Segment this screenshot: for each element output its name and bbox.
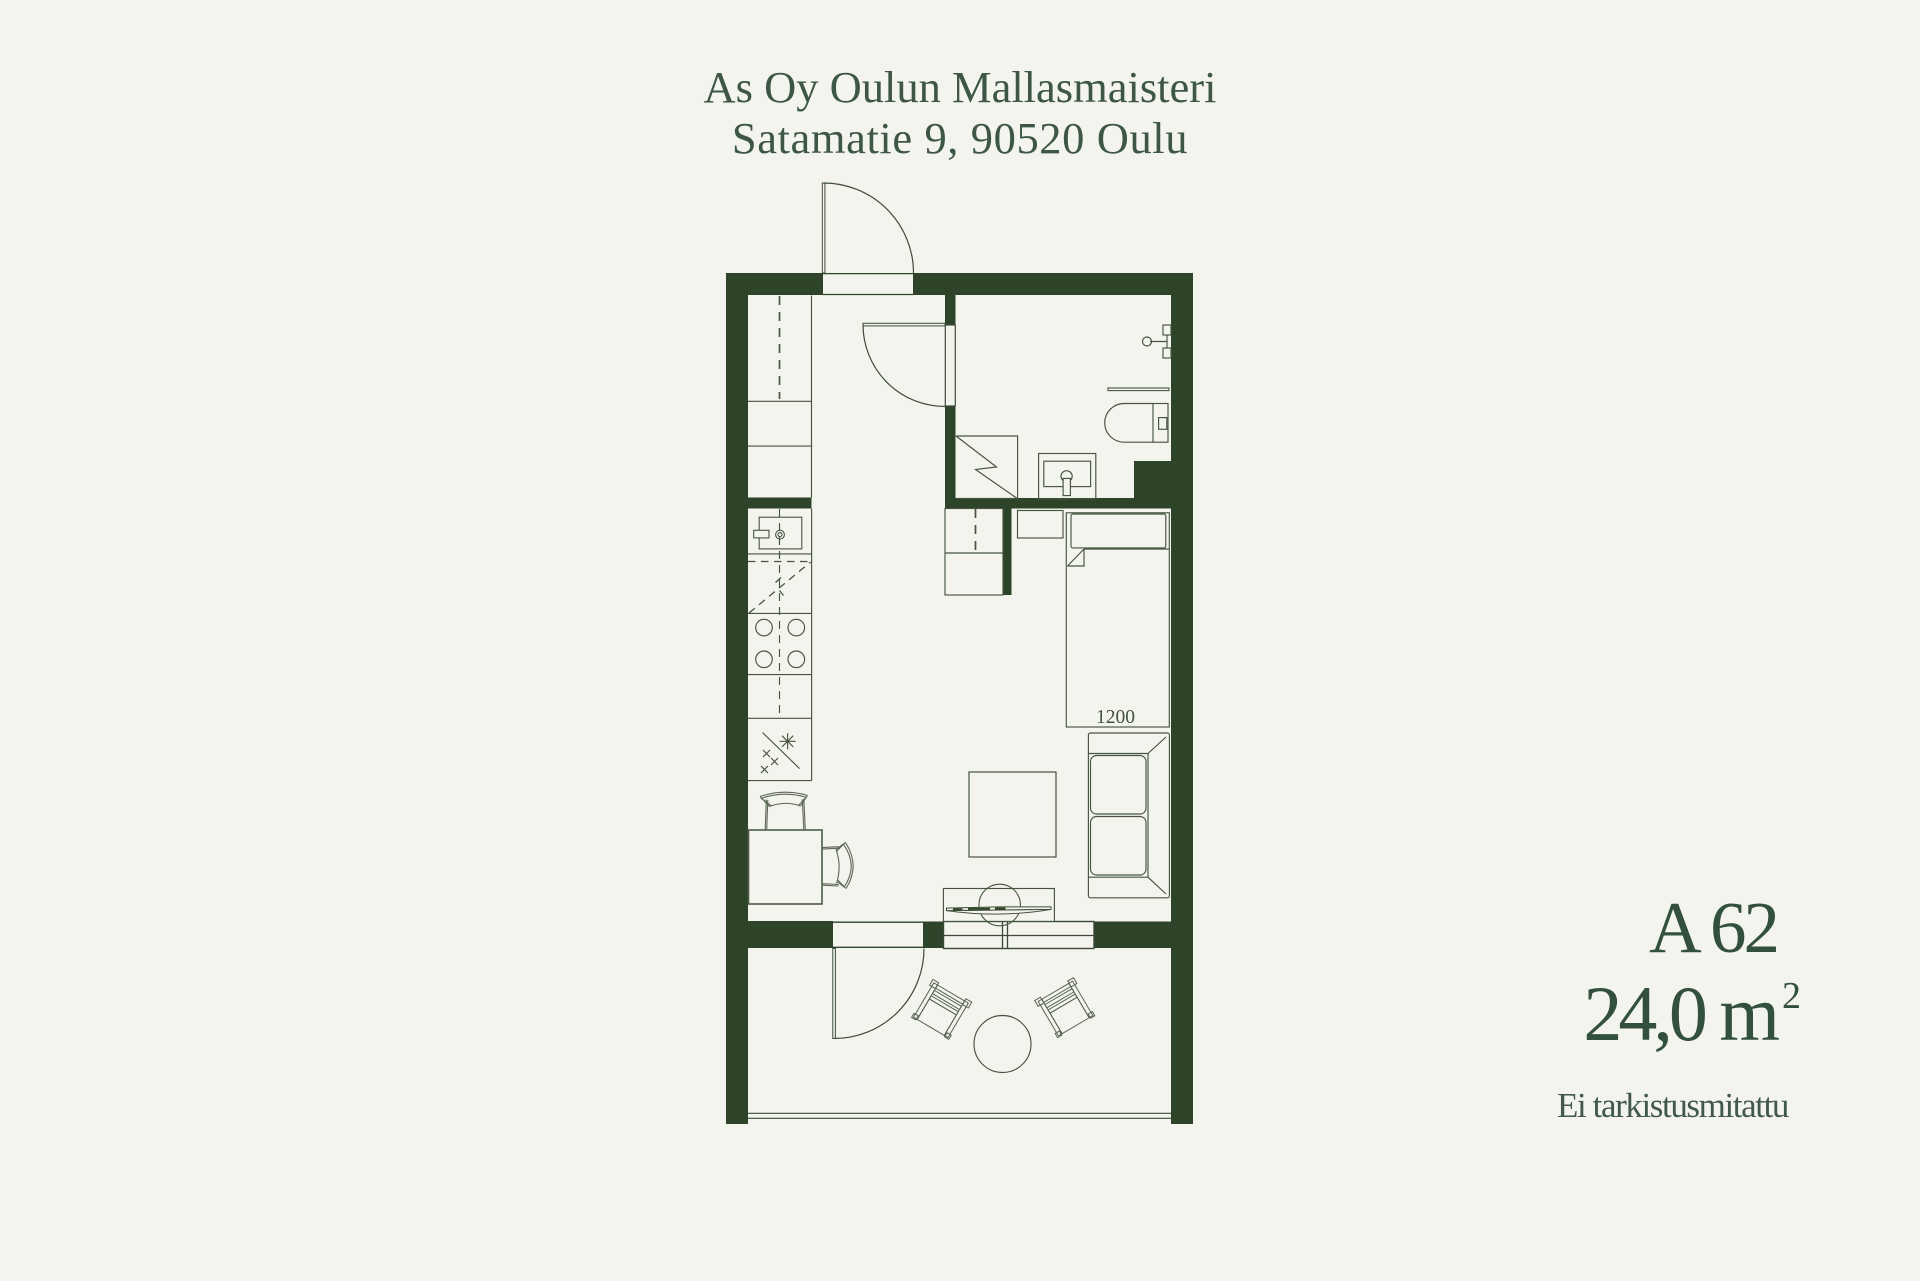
svg-text:A 62: A 62 bbox=[1649, 887, 1777, 968]
svg-text:24,0 m: 24,0 m bbox=[1583, 970, 1779, 1057]
svg-text:2: 2 bbox=[1782, 975, 1801, 1017]
svg-text:Ei tarkistusmitattu: Ei tarkistusmitattu bbox=[1557, 1086, 1789, 1125]
svg-text:As Oy Oulun Mallasmaisteri: As Oy Oulun Mallasmaisteri bbox=[704, 62, 1217, 112]
svg-text:1200: 1200 bbox=[1096, 707, 1135, 728]
svg-text:Satamatie 9, 90520 Oulu: Satamatie 9, 90520 Oulu bbox=[732, 113, 1188, 163]
